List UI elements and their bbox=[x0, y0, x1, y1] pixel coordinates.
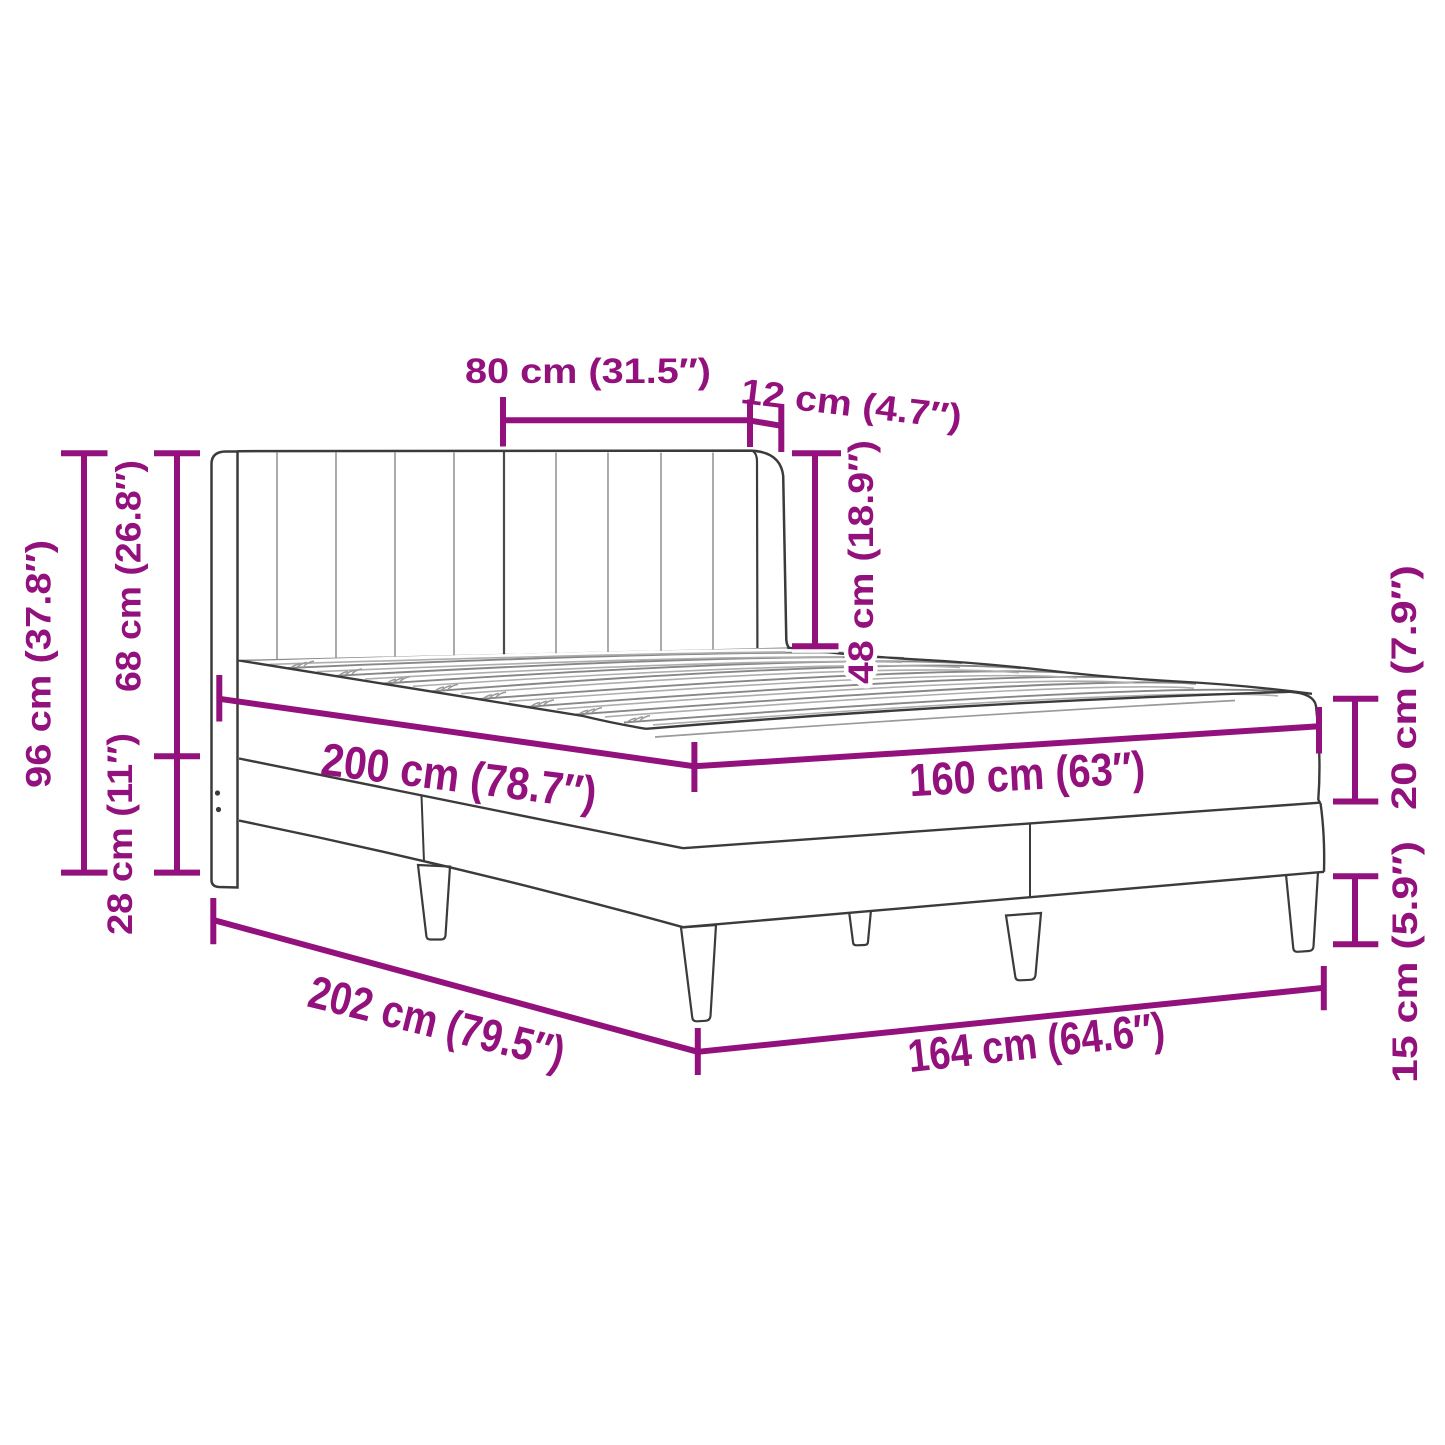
svg-text:15 cm (5.9″): 15 cm (5.9″) bbox=[1385, 841, 1425, 1083]
svg-text:20 cm (7.9″): 20 cm (7.9″) bbox=[1384, 565, 1424, 810]
svg-text:68 cm (26.8″): 68 cm (26.8″) bbox=[109, 460, 149, 692]
svg-text:28 cm (11″): 28 cm (11″) bbox=[100, 733, 140, 935]
svg-text:80 cm (31.5″): 80 cm (31.5″) bbox=[465, 351, 711, 391]
svg-text:48 cm (18.9″): 48 cm (18.9″) bbox=[841, 440, 881, 684]
svg-text:96 cm (37.8″): 96 cm (37.8″) bbox=[19, 540, 59, 788]
